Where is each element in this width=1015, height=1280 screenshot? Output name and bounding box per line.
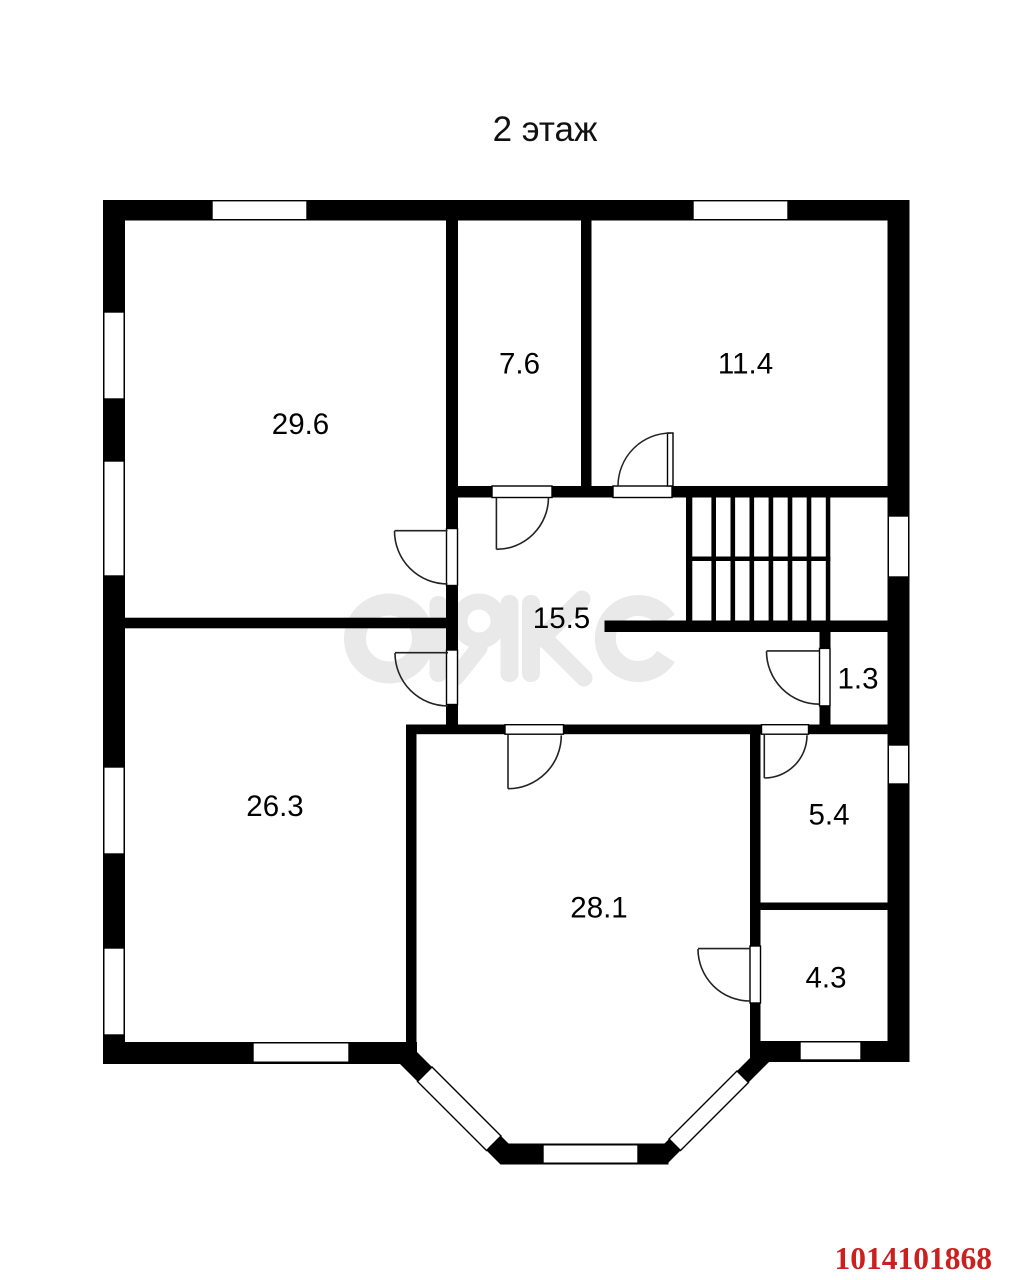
svg-text:29.6: 29.6 [272, 408, 329, 441]
svg-text:28.1: 28.1 [570, 892, 627, 925]
svg-text:15.5: 15.5 [533, 602, 590, 635]
svg-text:7.6: 7.6 [499, 348, 540, 381]
svg-text:5.4: 5.4 [808, 799, 849, 832]
svg-text:1014101868: 1014101868 [835, 1241, 993, 1276]
svg-text:1.3: 1.3 [837, 663, 878, 696]
svg-text:4.3: 4.3 [805, 962, 846, 995]
svg-text:11.4: 11.4 [718, 348, 773, 381]
svg-text:2 этаж: 2 этаж [493, 110, 598, 149]
svg-text:26.3: 26.3 [246, 790, 303, 823]
